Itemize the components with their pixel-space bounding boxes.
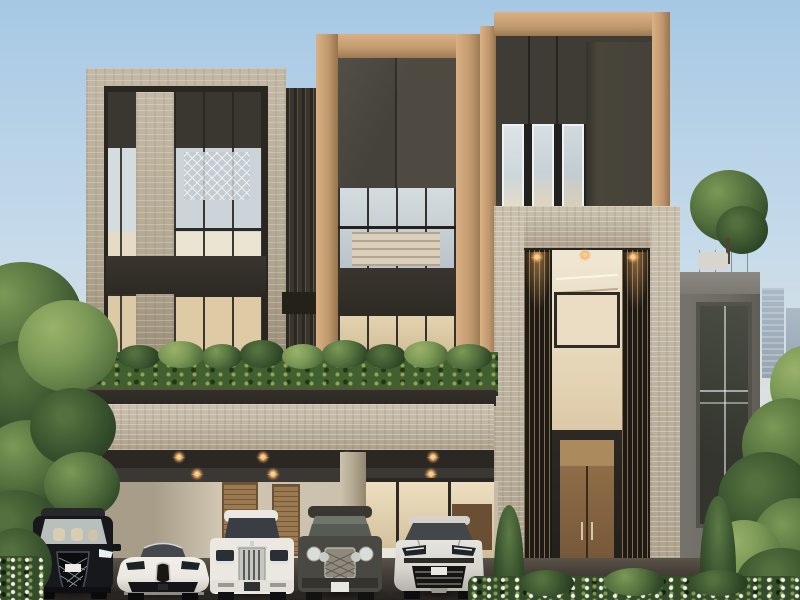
vertical-window xyxy=(562,124,584,212)
wheel xyxy=(128,593,144,600)
wheel xyxy=(218,592,234,600)
interior-seat xyxy=(88,530,98,541)
window-mullion xyxy=(700,390,748,392)
flower-bed-shrub xyxy=(690,570,748,596)
hedge-tuft xyxy=(404,341,448,368)
decorative-lattice-screen xyxy=(184,152,250,200)
right-wing-parapet xyxy=(676,272,760,294)
entry-glass xyxy=(552,250,622,600)
suv-windshield xyxy=(404,523,474,542)
windshield-shade xyxy=(308,524,372,538)
groundcover-bottom-left xyxy=(0,556,44,600)
vertical-window xyxy=(532,124,554,212)
architectural-rendering xyxy=(0,0,800,600)
entry-portal-right-jamb xyxy=(650,206,680,600)
headlight xyxy=(270,550,288,561)
vehicle-hypercar xyxy=(114,536,212,600)
wheel xyxy=(306,592,322,600)
headlight-outer xyxy=(359,547,373,561)
hedge-tuft xyxy=(118,345,160,369)
vehicle-flagship-sedan xyxy=(204,508,298,600)
entry-pendant-light xyxy=(530,250,544,264)
foliage-blob xyxy=(18,300,118,392)
carport-downlight xyxy=(266,467,280,481)
headlight-inner xyxy=(351,552,361,562)
window-transom xyxy=(174,228,262,231)
window-transom xyxy=(174,294,262,297)
right-tower-body xyxy=(496,36,652,212)
headlight-chrome xyxy=(270,561,288,564)
center-tower-window-grid xyxy=(338,188,456,268)
hedge-tuft xyxy=(240,340,284,368)
vehicle-luxury-suv xyxy=(294,504,386,600)
right-tower-top-band xyxy=(494,12,670,38)
hedge-tuft xyxy=(202,344,242,369)
license-plate xyxy=(244,582,260,591)
left-tower-spandrel xyxy=(106,256,266,294)
center-tower-spandrel xyxy=(338,268,456,316)
skid-plate xyxy=(430,588,448,593)
interior-seat xyxy=(53,528,65,541)
carport-downlight xyxy=(256,450,270,464)
wheel xyxy=(358,592,374,600)
window-mullion xyxy=(120,148,122,360)
bumper-intake xyxy=(218,583,234,587)
entry-pendant-light xyxy=(578,248,592,262)
flower-bed-shrub xyxy=(604,568,664,596)
hedge-tuft xyxy=(446,344,492,370)
mesh-grille xyxy=(325,548,355,578)
interior-seat xyxy=(71,528,83,541)
door-pull-handle xyxy=(581,522,583,540)
right-tower-right-pilaster xyxy=(652,12,670,212)
carport-downlight xyxy=(190,467,204,481)
headlight xyxy=(216,550,234,561)
center-tower-panels xyxy=(338,58,456,188)
sliding-panel xyxy=(586,42,652,212)
wheel xyxy=(404,591,420,599)
hedge-tuft xyxy=(158,341,204,368)
vertical-window xyxy=(502,124,524,212)
license-plate xyxy=(331,582,349,592)
sedan-windshield xyxy=(224,518,280,540)
license-plate xyxy=(158,584,168,590)
left-tower-concrete-mullion xyxy=(136,92,174,368)
license-plate xyxy=(431,567,447,575)
hedge-tuft xyxy=(366,344,406,369)
mid-grille-band xyxy=(404,558,474,563)
entry-pendant-light xyxy=(626,250,640,264)
carport-downlight xyxy=(426,450,440,464)
wheel xyxy=(270,592,286,600)
pantheon-grille xyxy=(239,548,265,582)
license-plate xyxy=(65,564,81,572)
interior-window-grid xyxy=(554,292,620,348)
window-transom xyxy=(338,226,456,229)
bumper-intake xyxy=(270,583,286,587)
wheel xyxy=(182,593,198,600)
flower-bed-shrub xyxy=(520,570,574,596)
left-tower-window-wide xyxy=(174,92,262,368)
headlight-outer xyxy=(307,547,321,561)
headlight-chrome xyxy=(216,561,234,564)
interior-bookshelf xyxy=(352,232,440,266)
roof-terrace-tree-shade xyxy=(716,206,768,254)
headlight-inner xyxy=(319,552,329,562)
door-transom xyxy=(560,440,614,466)
white-planter xyxy=(698,252,728,270)
wheel xyxy=(91,592,107,599)
carport-downlight xyxy=(172,450,186,464)
hedge-tuft xyxy=(282,344,324,369)
door-pull-handle xyxy=(591,522,593,540)
hedge-tuft xyxy=(322,340,368,368)
interior-ceiling-line xyxy=(556,274,618,280)
horseshoe-grille xyxy=(156,563,170,583)
right-tower-window-trio xyxy=(502,124,586,212)
window-mullion xyxy=(700,402,748,404)
